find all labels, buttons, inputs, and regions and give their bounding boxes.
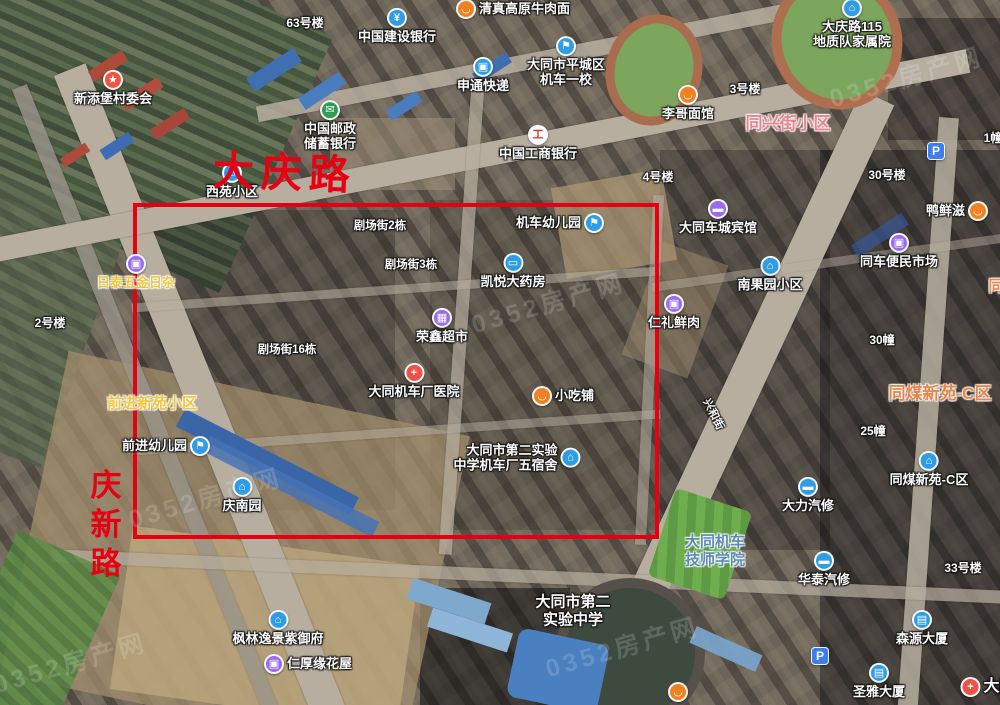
qingxin-road-label: 庆新路 [81,469,126,586]
daqing-road-label: 大庆路 [212,137,358,202]
xinghe-street-label: 兴和街 [699,396,728,433]
road-label-layer: 大庆路庆新路兴和街 [0,0,1000,705]
satellite-map[interactable]: 0352房产网0352房产网0352房产网0352房产网0352房产网 大庆路庆… [0,0,1000,705]
